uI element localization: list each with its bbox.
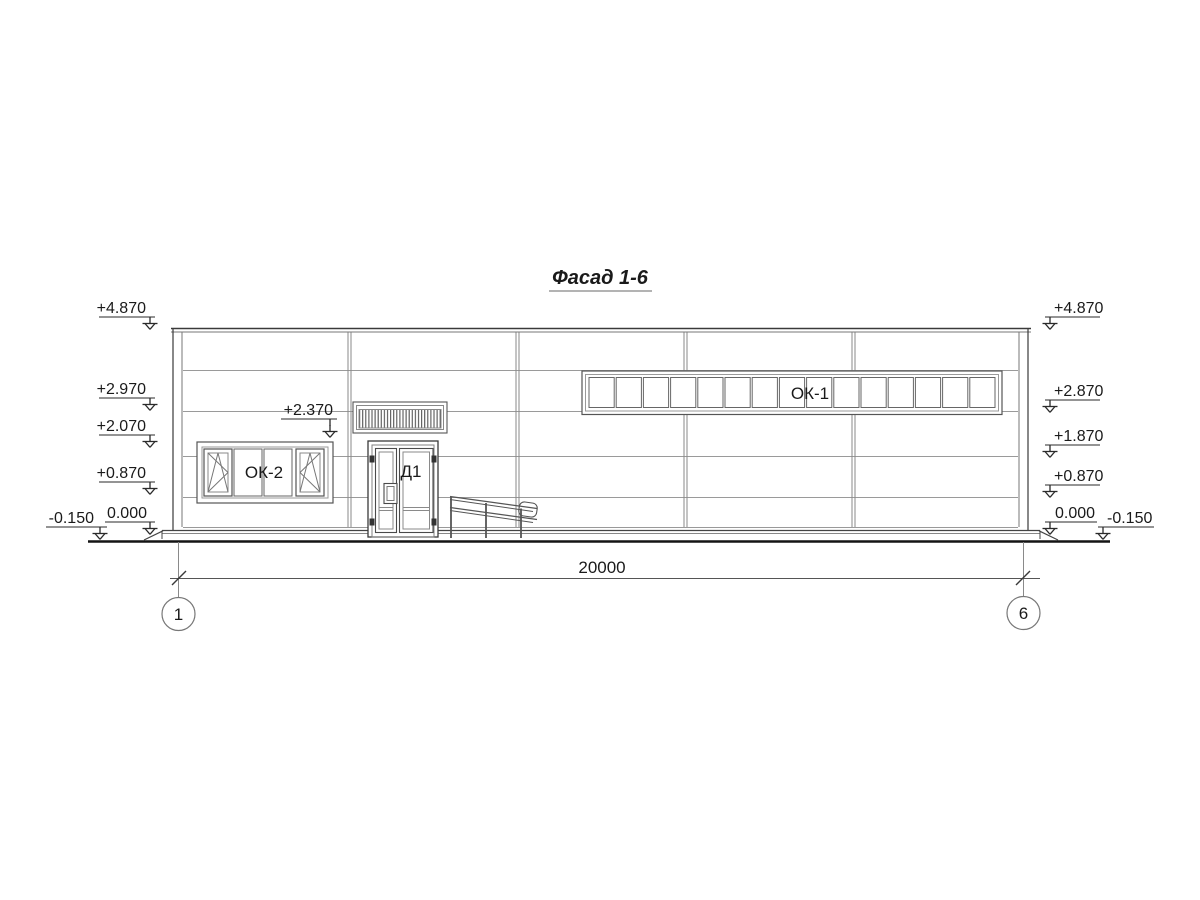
elevation-mark: +2.070 <box>97 418 158 447</box>
facade-drawing: Фасад 1-6 <box>0 0 1200 900</box>
elevation-mark: -0.150 <box>1096 510 1155 539</box>
elevation-mark: -0.150 <box>46 510 108 539</box>
elevation-value: +1.870 <box>1054 428 1103 445</box>
louver-grille <box>353 402 447 433</box>
elevation-marks-left: +4.870 +2.970 +2.070 +0.870 0.000 -0.150 <box>46 300 158 539</box>
drawing-title: Фасад 1-6 <box>549 267 652 291</box>
door-handle <box>384 484 397 504</box>
elevation-marks-right: +4.870 +2.870 +1.870 +0.870 0.000 -0.150 <box>1043 300 1155 539</box>
axis-6-label: 6 <box>1019 604 1028 623</box>
ok1-label: ОК-1 <box>791 384 829 403</box>
elevation-value: -0.150 <box>1107 510 1152 527</box>
left-apron-slope <box>144 531 163 540</box>
elevation-mark: +2.870 <box>1043 383 1104 412</box>
window-band-ok1: ОК-1 <box>582 371 1002 415</box>
elevation-mark: +2.970 <box>97 381 158 410</box>
elevation-value: 0.000 <box>1055 505 1095 522</box>
dimension-text: 20000 <box>578 558 625 577</box>
elevation-value: 0.000 <box>107 505 147 522</box>
elevation-mark: 0.000 <box>105 505 158 534</box>
entrance-ramp-railing <box>450 497 538 539</box>
elevation-value: +2.870 <box>1054 383 1103 400</box>
elevation-value: +2.070 <box>97 418 146 435</box>
door-label: Д1 <box>401 462 422 481</box>
ok2-label: ОК-2 <box>245 463 283 482</box>
elevation-mark-door: +2.370 <box>281 402 338 437</box>
elevation-mark: +1.870 <box>1043 428 1104 457</box>
elevation-value: +4.870 <box>1054 300 1103 317</box>
elevation-value: +2.370 <box>284 402 333 419</box>
axis-bubble-1: 1 <box>162 598 195 631</box>
elevation-mark: +4.870 <box>97 300 158 329</box>
elevation-mark: 0.000 <box>1043 505 1098 534</box>
axis-bubble-6: 6 <box>1007 597 1040 630</box>
dimension-20000: 20000 <box>170 542 1040 597</box>
window-ok2: ОК-2 <box>197 442 333 503</box>
elevation-mark: +0.870 <box>1043 468 1104 497</box>
drawing-sheet: Фасад 1-6 <box>0 0 1200 900</box>
axis-1-label: 1 <box>174 605 183 624</box>
plinth <box>144 528 1058 541</box>
elevation-value: +0.870 <box>97 465 146 482</box>
elevation-value: +2.970 <box>97 381 146 398</box>
elevation-value: +0.870 <box>1054 468 1103 485</box>
door-d1: Д1 <box>368 441 438 537</box>
elevation-mark: +4.870 <box>1043 300 1104 329</box>
elevation-value: -0.150 <box>49 510 94 527</box>
page-title: Фасад 1-6 <box>552 267 649 289</box>
elevation-mark: +0.870 <box>97 465 158 494</box>
elevation-value: +4.870 <box>97 300 146 317</box>
